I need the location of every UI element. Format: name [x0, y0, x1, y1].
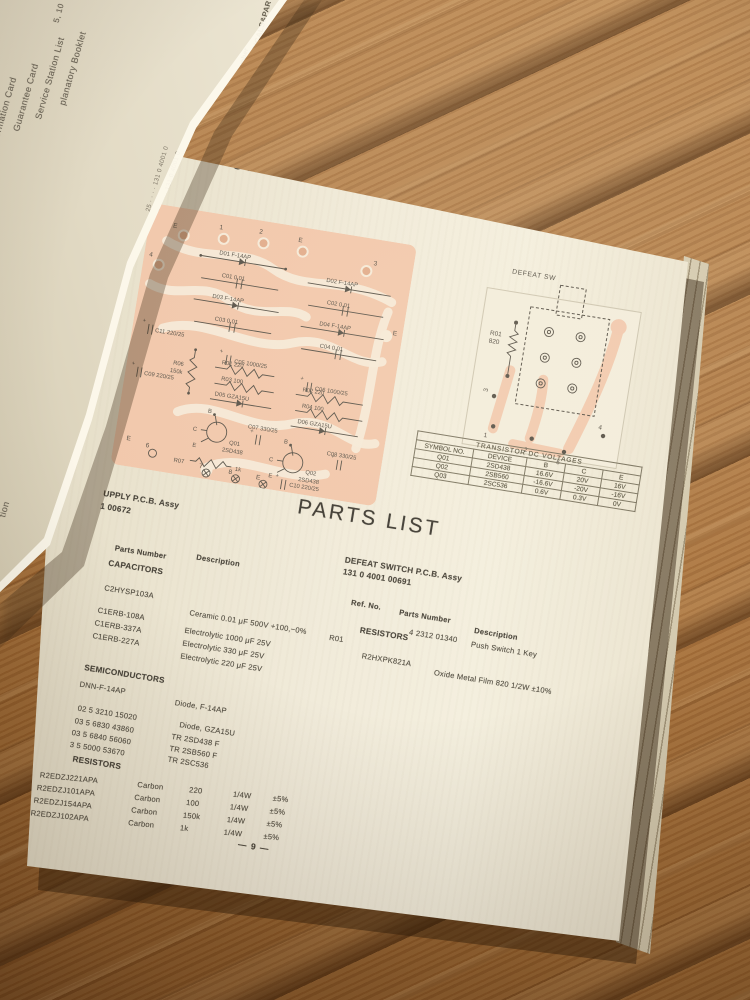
- column-header-description: Description: [474, 626, 519, 642]
- part-value: 1k: [180, 823, 189, 833]
- power-supply-pcb-diagram: E 1 2 E 3 4 E D01 F-14AP C01 0.01 D03 F-…: [110, 203, 417, 506]
- part-value: 100: [186, 798, 200, 808]
- section-title-resistors: RESISTORS: [72, 754, 122, 771]
- part-desc: Push Switch 1 Key: [470, 640, 537, 660]
- part-number: R2EDZJ221APA: [39, 770, 98, 785]
- part-number: 4 2312 01340: [408, 628, 458, 645]
- part-number: R2HXPK821A: [361, 651, 412, 668]
- ref-no: R01: [329, 633, 345, 644]
- part-number: DNN-F-14AP: [79, 680, 127, 696]
- part-wattage: 1/4W: [232, 790, 251, 801]
- column-header-description: Description: [196, 553, 241, 569]
- part-desc: Diode, F-14AP: [174, 698, 227, 715]
- defeat-sw-label: DEFEAT SW: [512, 268, 557, 282]
- part-number: C2HYSP103A: [104, 583, 155, 600]
- part-number: R2EDZJ101APA: [36, 783, 95, 798]
- part-tolerance: ±5%: [263, 832, 280, 843]
- section-title-resistors: RESISTORS: [359, 626, 409, 643]
- part-wattage: 1/4W: [226, 815, 245, 826]
- underpage-text: tion: [0, 500, 11, 518]
- part-wattage: 1/4W: [229, 802, 248, 813]
- part-value: 150k: [183, 811, 201, 822]
- section-title-capacitors: CAPACITORS: [108, 559, 164, 577]
- column-header-ref-no: Ref. No.: [350, 598, 381, 612]
- part-wattage: 1/4W: [223, 828, 242, 839]
- column-header-parts-number: Parts Number: [399, 608, 452, 625]
- part-desc: Oxide Metal Film 820 1/2W ±10%: [433, 668, 552, 696]
- pcb-label: 1k: [234, 467, 241, 474]
- part-material: Carbon: [134, 793, 161, 805]
- photo-of-service-manual-page: OWER SUPPLY P.C.BOARD DEFEAT SWITCH P.C.…: [0, 0, 750, 1000]
- part-value: 220: [189, 785, 203, 795]
- assy-number: 1 00672: [100, 502, 132, 516]
- underpage-text: Guarantee Card: [11, 62, 40, 132]
- part-number: R2EDZJ154APA: [33, 796, 92, 811]
- underpage-text: 5, 10: [52, 2, 66, 24]
- part-material: Carbon: [137, 780, 164, 792]
- part-tolerance: ±5%: [269, 806, 286, 817]
- column-header-parts-number: Parts Number: [114, 543, 167, 560]
- part-material: Carbon: [128, 818, 155, 830]
- part-number: R2EDZJ102APA: [30, 808, 89, 823]
- part-material: Carbon: [131, 805, 158, 817]
- underpage-text: Service Station List: [33, 36, 66, 121]
- part-tolerance: ±5%: [266, 819, 283, 830]
- part-tolerance: ±5%: [272, 794, 289, 805]
